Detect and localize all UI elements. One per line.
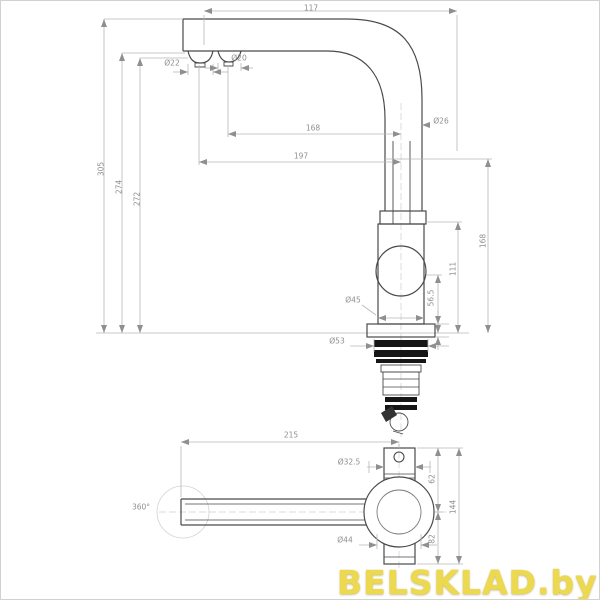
technical-drawing-linework [1, 1, 599, 599]
side-view-outline [183, 19, 435, 434]
label-right-height-mid: 111 [449, 262, 457, 276]
label-reach-outer: 197 [294, 152, 308, 160]
label-spout-pipe-dia: Ø26 [433, 117, 448, 125]
spout-outer-curve [183, 19, 422, 211]
label-base-circle-dia: Ø44 [337, 536, 352, 544]
label-spout-length: 215 [284, 431, 298, 439]
rubber-gaskets [374, 340, 428, 422]
pipe-collar [380, 211, 426, 224]
label-base-diameter: Ø53 [329, 337, 344, 345]
aerator-left [188, 51, 213, 63]
label-offset-bottom: 82 [428, 534, 436, 544]
base-outer-circle [364, 477, 434, 547]
label-height-to-spout: 274 [115, 180, 123, 194]
label-swivel-angle: 360° [132, 503, 150, 511]
label-aerator-left-dia: Ø22 [164, 59, 179, 67]
label-reach-inner: 168 [306, 124, 320, 132]
label-height-to-aerator: 272 [133, 192, 141, 206]
label-top-width: 117 [304, 4, 318, 12]
label-right-height-lower: 56.5 [427, 290, 435, 307]
label-body-diameter: Ø45 [345, 296, 360, 304]
label-base-width: Ø32.5 [338, 458, 361, 466]
label-height-total: 305 [97, 162, 105, 176]
belsklad-watermark: BELSKLAD.by [337, 563, 598, 600]
faucet-dimension-drawing: 117 Ø22 Ø20 Ø26 168 197 305 274 272 168 … [0, 0, 600, 600]
label-aerator-right-dia: Ø20 [231, 54, 246, 62]
label-right-height-upper: 168 [479, 234, 487, 248]
label-block-height: 144 [449, 500, 457, 514]
label-offset-top: 62 [428, 474, 436, 484]
